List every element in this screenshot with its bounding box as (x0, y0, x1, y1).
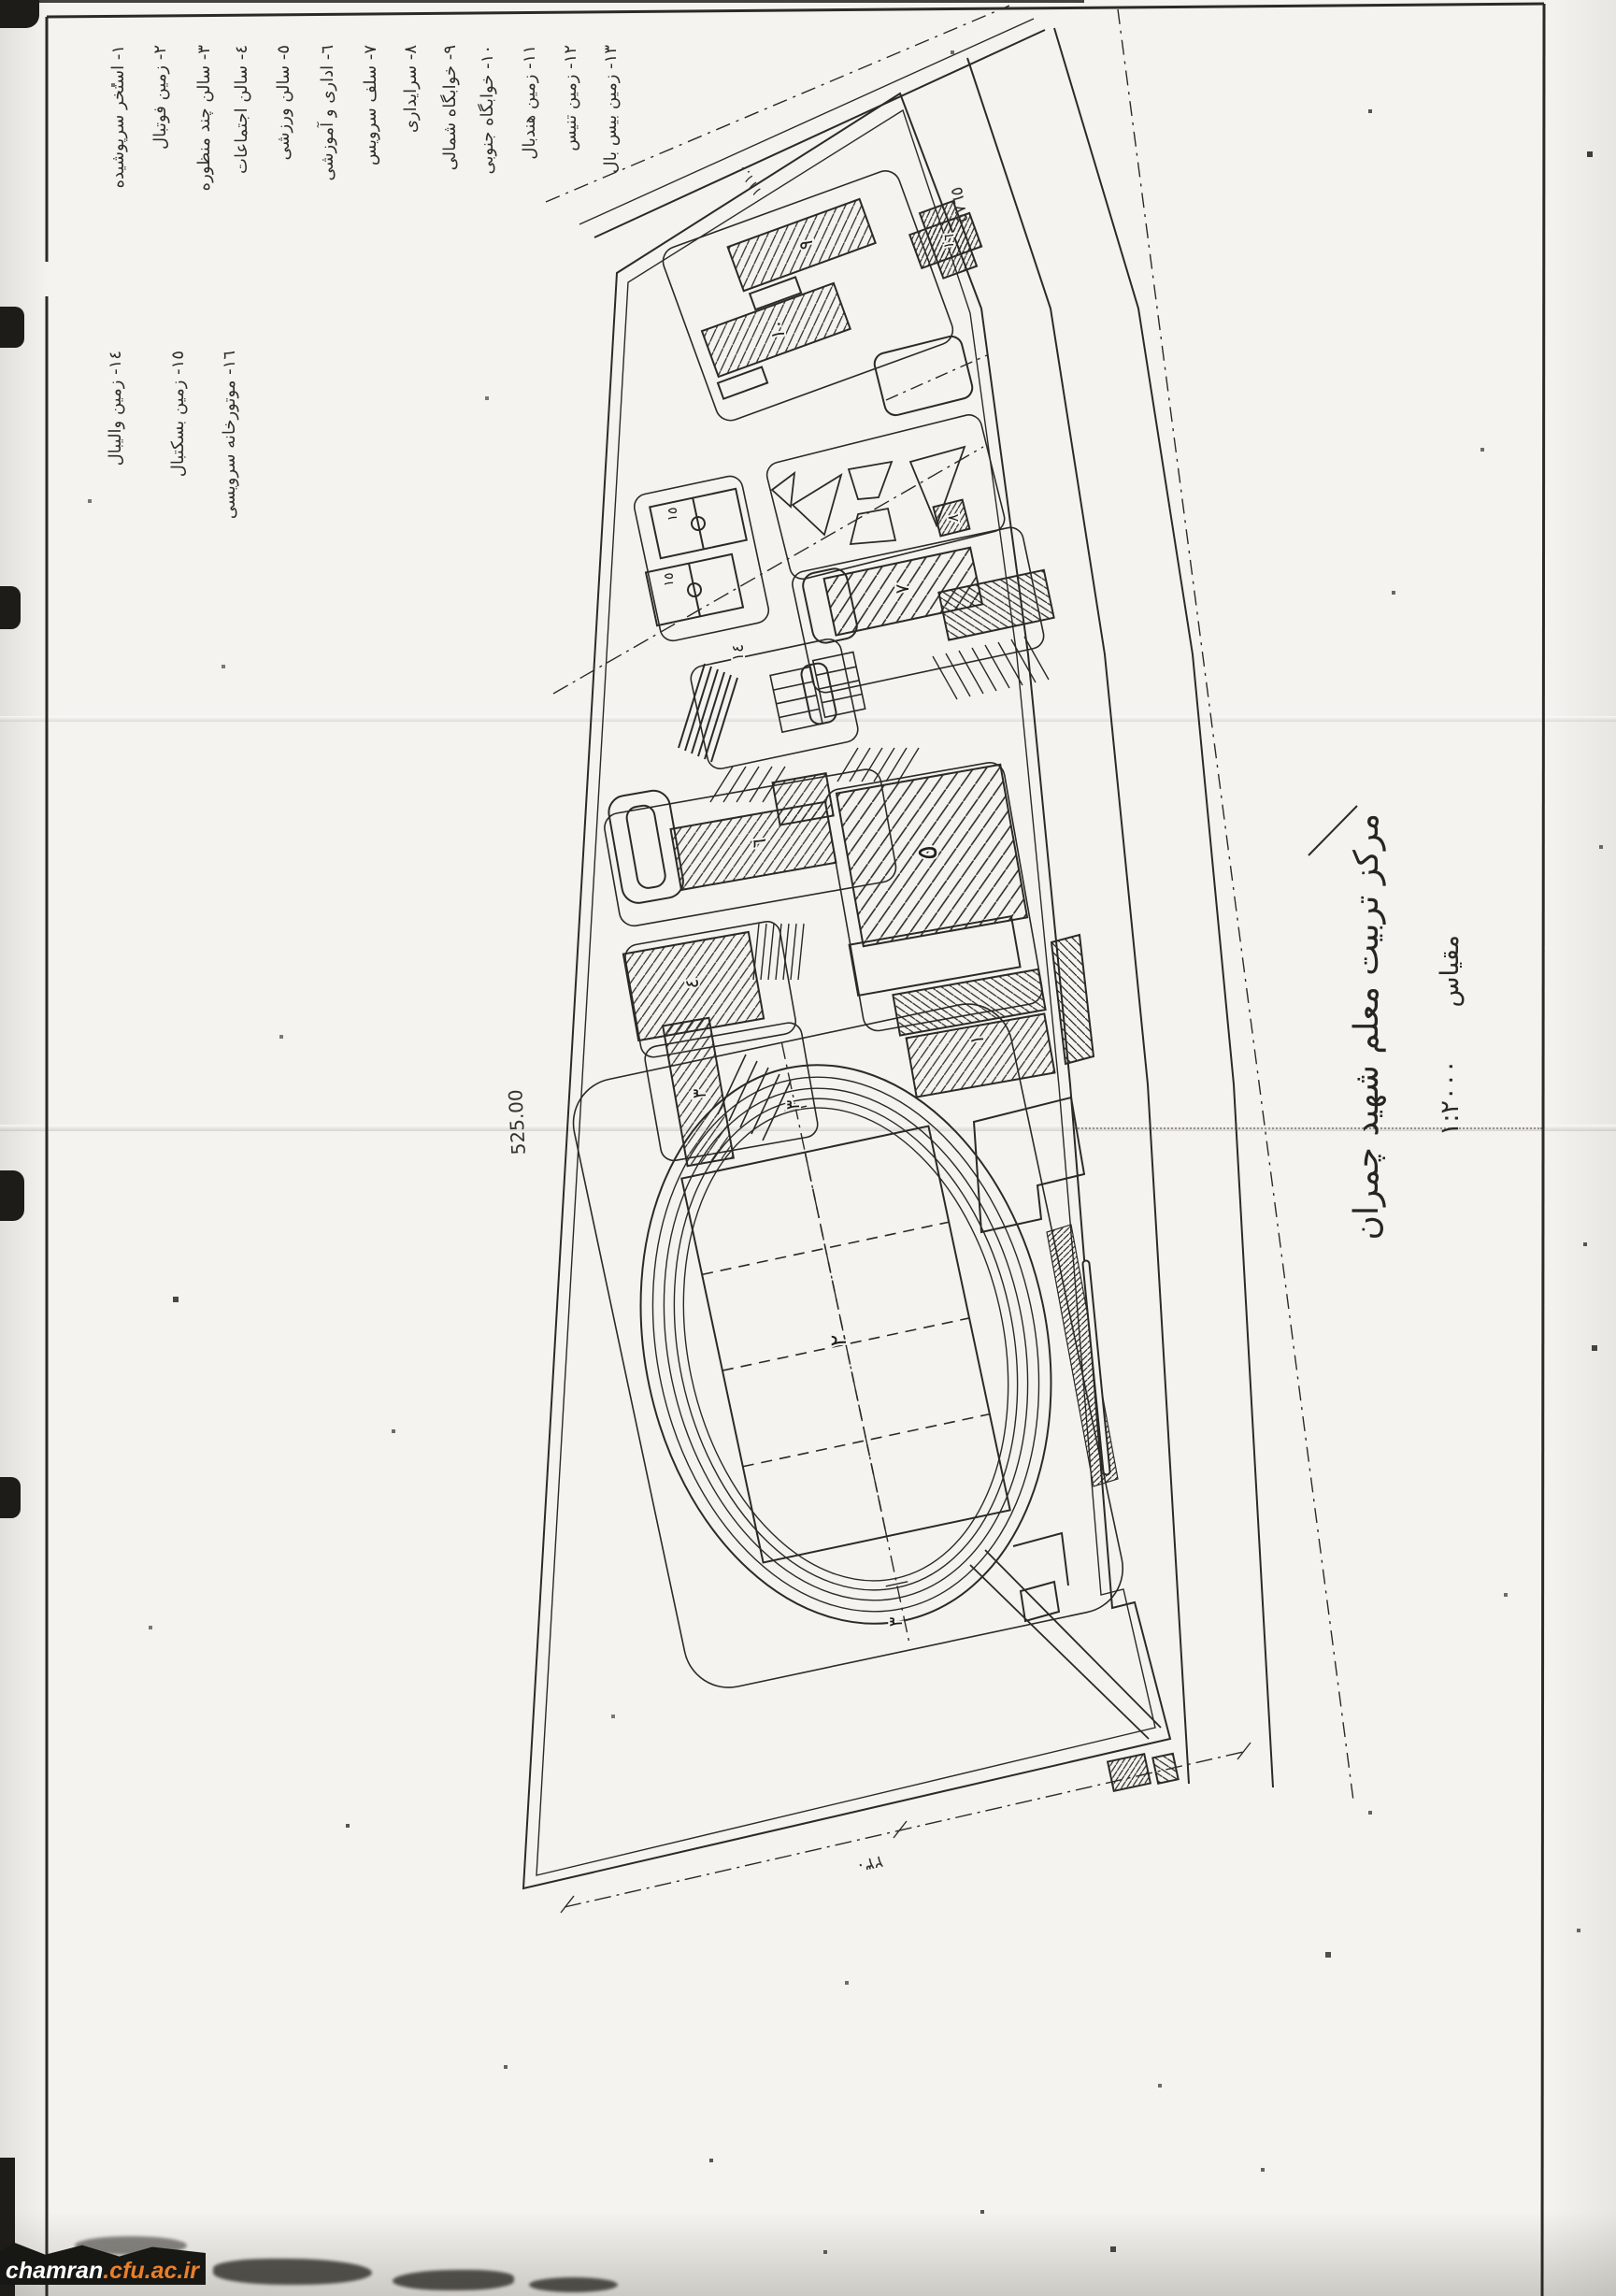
building-7 (824, 534, 1054, 663)
building-label-3: ٣ (688, 1088, 710, 1098)
l-wall (1013, 1533, 1068, 1586)
legend-item-2: ٢- زمین فوتبال (150, 45, 170, 279)
scale-value: ١:٢٠٠٠ (1436, 1059, 1465, 1136)
legend-item-1: ١- استخر سرپوشیده (108, 45, 128, 279)
legend-item-8: ٨- سرایداری (401, 45, 421, 279)
legend-item-12: ١٢- زمین تنیس (561, 45, 580, 279)
axis-label-3-bottom: ٣ (884, 1616, 907, 1627)
legend-item-14: ١٤- زمین والیبال (106, 351, 125, 575)
scanned-site-plan-page: ١٦ ٩ ١٠ ٨ ٧ ١٥ ١٥ ١٤ ٦ ٥ ٤ ٣ ١ ٢ ٣ ٣ 525… (0, 0, 1616, 2296)
court-15a (650, 489, 747, 558)
legend-item-6: ٦- اداری و آموزشی (318, 45, 337, 279)
legend-item-7: ٧- سلف سرویس (361, 45, 380, 279)
axis-label-3-top: ٣ (781, 1099, 804, 1110)
legend-item-4: ٤- سالن اجتماعات (232, 45, 251, 279)
court-label-15a: ١٥ (665, 507, 680, 521)
dimension-west: 525.00 (504, 1089, 530, 1155)
building-label-9: ٩ (794, 240, 817, 251)
dimension-northwest: ١١١.٠ (733, 161, 765, 199)
court-15b (646, 554, 743, 625)
gatehouse (1108, 1748, 1179, 1793)
internal-lots (565, 166, 1132, 1696)
gate-road (970, 1550, 1161, 1739)
dimension-south: ٢٣٠ (854, 1851, 885, 1876)
building-1 (893, 969, 1056, 1098)
legend-item-15: ١٥- زمین بسکتبال (168, 351, 188, 575)
legend-item-5: ٥- سالن ورزشی (274, 45, 293, 279)
court-label-15b: ١٥ (662, 572, 677, 586)
bleacher-stripes (679, 664, 737, 762)
scale-label: مقیاس (1436, 935, 1465, 1007)
plan-title: مرکز تربیت معلم شهید چمران (1348, 813, 1386, 1337)
scale-note: مقیاس١:٢٠٠٠ (1436, 935, 1465, 1257)
building-label-4: ٤ (680, 979, 703, 989)
legend-item-10: ١٠- خوابگاه جنوبی (478, 45, 497, 279)
watermark-domain: .cfu.ac.ir (103, 2260, 199, 2283)
building-label-8: ٨ (944, 513, 962, 522)
field-label-2: ٢ (825, 1335, 851, 1347)
court-label-14: ١٤ (729, 644, 748, 661)
legend-item-16: ١٦- موتورخانه سرویسی (220, 351, 239, 575)
building-6 (665, 773, 841, 890)
east-wedge (1051, 935, 1094, 1064)
rounded-building (872, 334, 975, 417)
legend-item-11: ١١- زمین هندبال (520, 45, 539, 279)
building-label-1: ١ (965, 1035, 988, 1045)
ne-lot (974, 1098, 1084, 1232)
building-label-5: ٥ (911, 845, 944, 860)
building-label-10: ١٠ (766, 319, 789, 338)
building-label-7: ٧ (891, 583, 913, 594)
parking-comb (753, 924, 804, 980)
watermark-site: chamran (6, 2260, 103, 2283)
building-label-16: ١٦ (940, 234, 957, 249)
legend-item-3: ٣- سالن چند منظوره (194, 45, 214, 279)
axis-dash-line (886, 355, 987, 400)
plaza-shapes (772, 447, 965, 544)
l-wall-small (1021, 1582, 1059, 1621)
legend-item-9: ٩- خوابگاه شمالی (440, 45, 460, 279)
building-label-6: ٦ (748, 839, 770, 849)
legend-item-13: ١٣- زمین بیس بال (601, 45, 621, 279)
